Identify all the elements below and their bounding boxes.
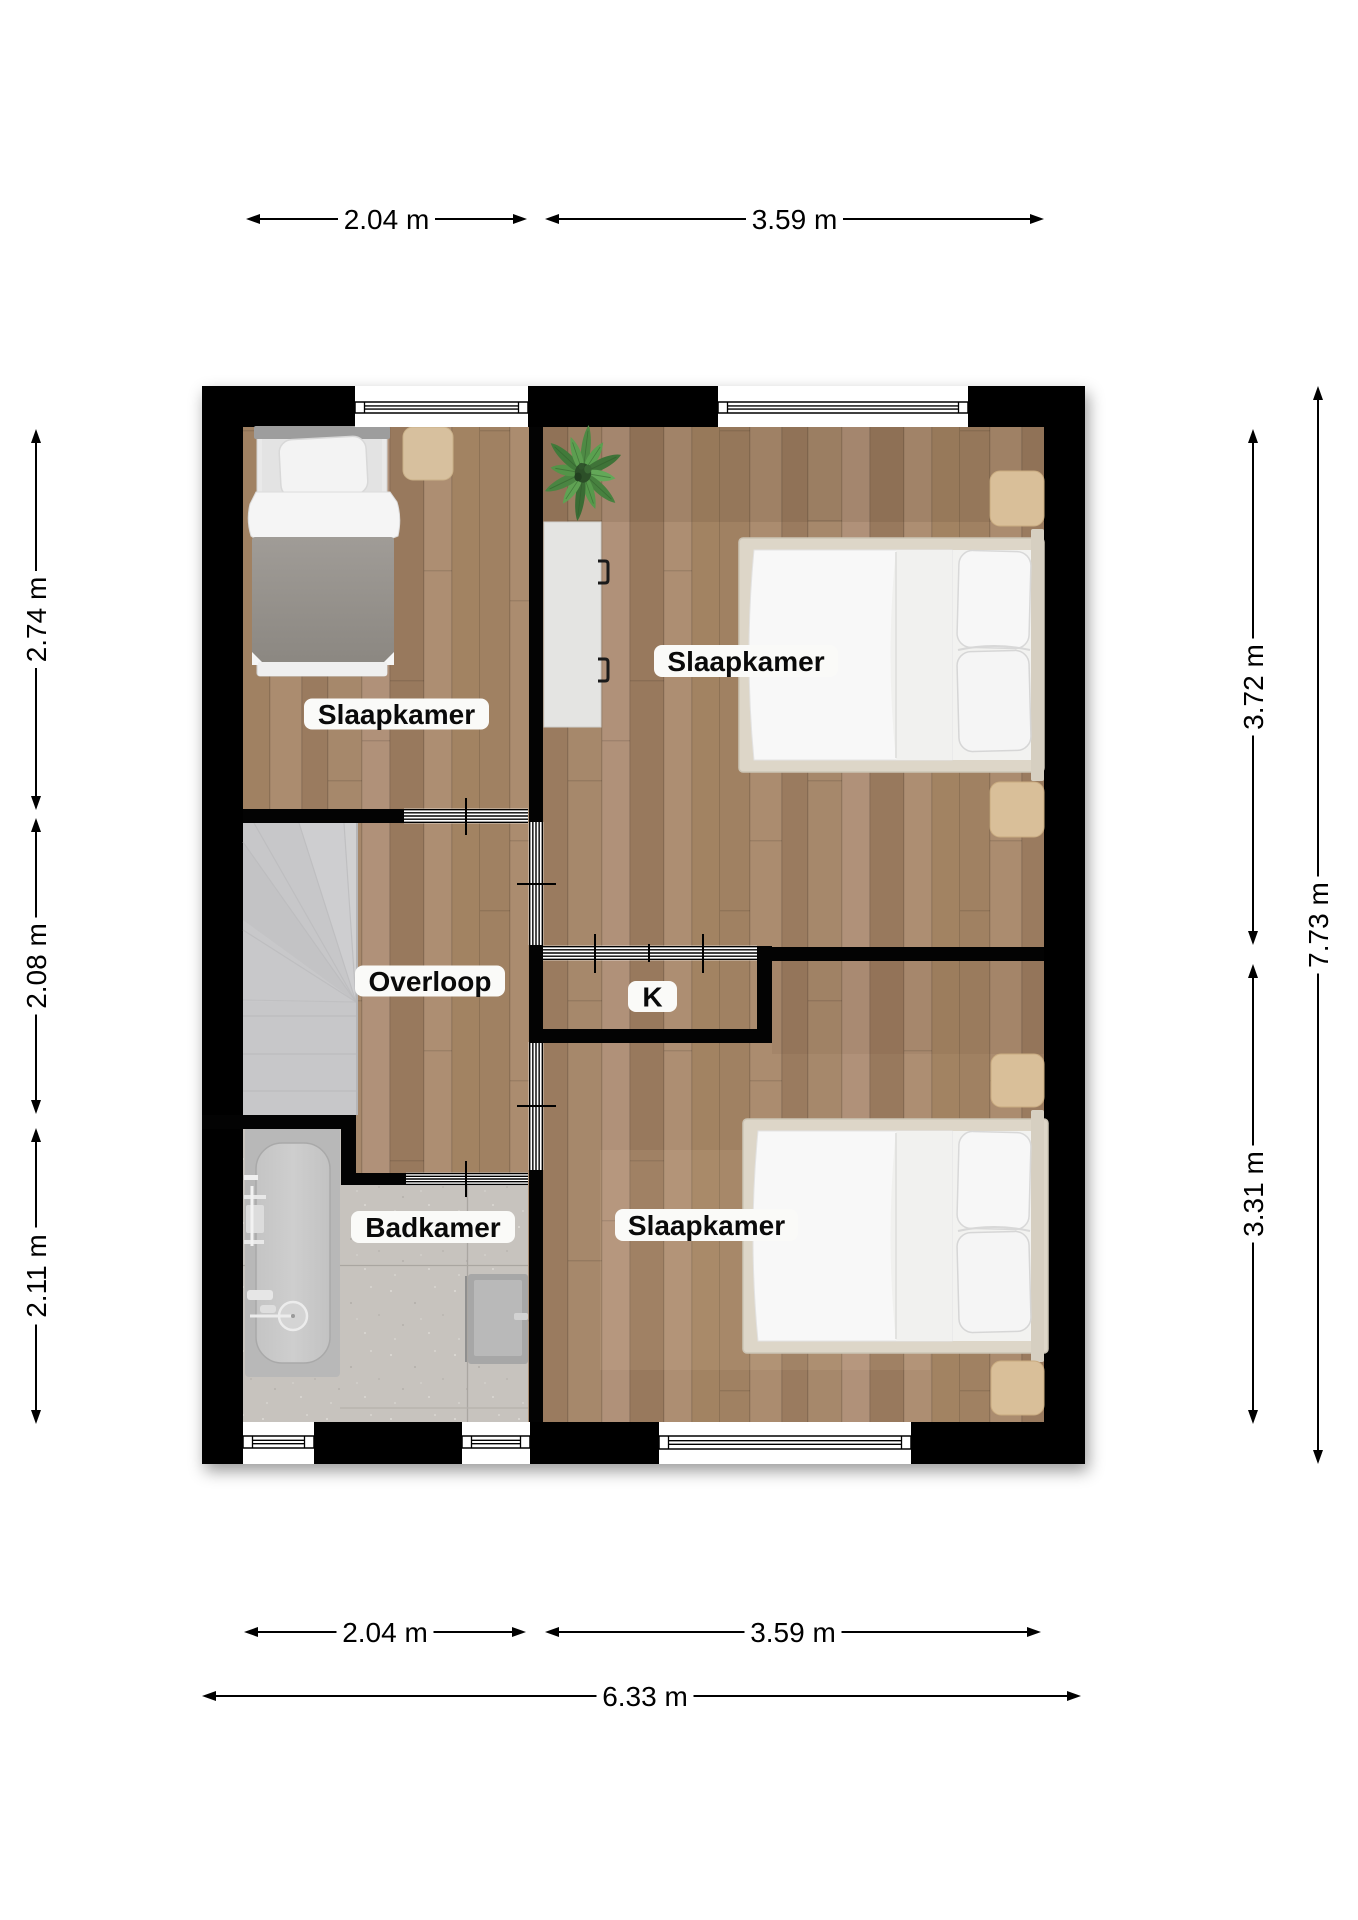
- svg-text:6.33 m: 6.33 m: [602, 1681, 688, 1712]
- svg-text:Slaapkamer: Slaapkamer: [628, 1210, 785, 1241]
- svg-text:2.08 m: 2.08 m: [21, 923, 52, 1009]
- svg-text:3.31 m: 3.31 m: [1238, 1151, 1269, 1237]
- svg-text:Slaapkamer: Slaapkamer: [667, 646, 824, 677]
- svg-text:K: K: [642, 982, 662, 1013]
- svg-text:2.74 m: 2.74 m: [21, 577, 52, 663]
- svg-text:Badkamer: Badkamer: [365, 1212, 501, 1243]
- svg-text:3.59 m: 3.59 m: [750, 1617, 836, 1648]
- svg-text:2.04 m: 2.04 m: [342, 1617, 428, 1648]
- svg-text:2.04 m: 2.04 m: [344, 204, 430, 235]
- svg-text:7.73 m: 7.73 m: [1303, 882, 1334, 968]
- svg-text:Slaapkamer: Slaapkamer: [318, 699, 475, 730]
- svg-text:3.72 m: 3.72 m: [1238, 644, 1269, 730]
- svg-text:Overloop: Overloop: [369, 966, 492, 997]
- svg-text:3.59 m: 3.59 m: [752, 204, 838, 235]
- svg-text:2.11 m: 2.11 m: [21, 1234, 52, 1318]
